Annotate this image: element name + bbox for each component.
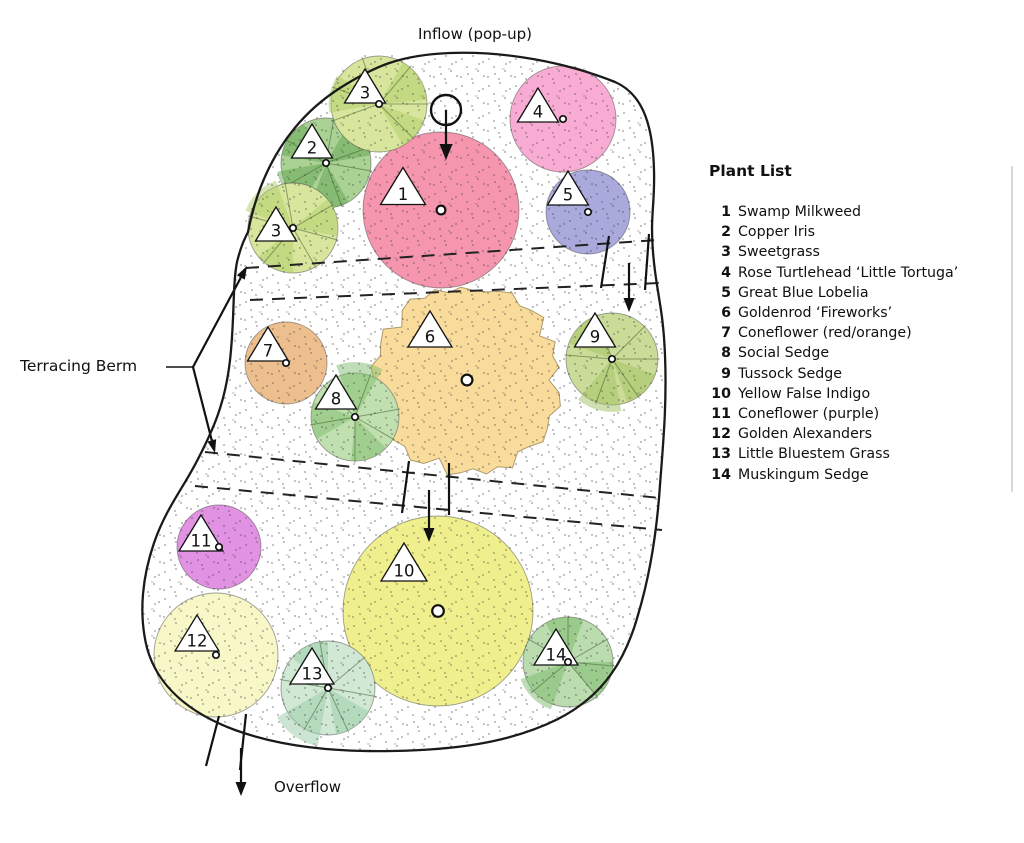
plant-list-item: 7Coneflower (red/orange) bbox=[705, 323, 1015, 343]
plant-center-dot bbox=[283, 360, 289, 366]
plant-number: 11 bbox=[705, 404, 731, 424]
plant-list-item: 14Muskingum Sedge bbox=[705, 465, 1015, 485]
plant-triangle-number: 2 bbox=[307, 139, 318, 158]
plant-number: 6 bbox=[705, 303, 731, 323]
inflow-label: Inflow (pop-up) bbox=[405, 25, 545, 43]
leader-arrow bbox=[193, 367, 216, 453]
plant-triangle-number: 5 bbox=[563, 186, 574, 205]
plant-triangle-number: 9 bbox=[590, 328, 601, 347]
plant-triangle-number: 14 bbox=[546, 646, 567, 665]
plant-center-dot bbox=[352, 414, 358, 420]
plant-number: 10 bbox=[705, 384, 731, 404]
plant-triangle-number: 12 bbox=[187, 632, 208, 651]
plant-center-dot bbox=[376, 101, 382, 107]
plant-number: 14 bbox=[705, 465, 731, 485]
plant-center-dot bbox=[213, 652, 219, 658]
plant-center-dot bbox=[216, 544, 222, 550]
plant-center-dot bbox=[565, 659, 571, 665]
plant-name: Little Bluestem Grass bbox=[731, 444, 890, 464]
plant-triangle-number: 3 bbox=[360, 84, 371, 103]
plant-list-item: 9Tussock Sedge bbox=[705, 364, 1015, 384]
plant-number: 4 bbox=[705, 263, 731, 283]
plant-list-items: 1Swamp Milkweed2Copper Iris3Sweetgrass4R… bbox=[705, 202, 1015, 485]
plant-center-dot bbox=[323, 160, 329, 166]
plant-triangle-number: 11 bbox=[191, 532, 212, 551]
plant-name: Coneflower (purple) bbox=[731, 404, 879, 424]
plant-number: 9 bbox=[705, 364, 731, 384]
plant-list-item: 13Little Bluestem Grass bbox=[705, 444, 1015, 464]
overflow-label: Overflow bbox=[274, 778, 341, 796]
plant-name: Goldenrod ‘Fireworks’ bbox=[731, 303, 892, 323]
plant-list-item: 4Rose Turtlehead ‘Little Tortuga’ bbox=[705, 263, 1015, 283]
plant-triangle-number: 7 bbox=[263, 342, 274, 361]
plant-triangle-number: 1 bbox=[398, 185, 409, 204]
plant-list-item: 6Goldenrod ‘Fireworks’ bbox=[705, 303, 1015, 323]
plant-center-dot bbox=[560, 116, 566, 122]
plant-name: Coneflower (red/orange) bbox=[731, 323, 912, 343]
plant-triangle-number: 6 bbox=[425, 328, 436, 347]
plant-number: 5 bbox=[705, 283, 731, 303]
plant-center-dot bbox=[609, 356, 615, 362]
plant-list-item: 12Golden Alexanders bbox=[705, 424, 1015, 444]
plant-number: 7 bbox=[705, 323, 731, 343]
plant-number: 12 bbox=[705, 424, 731, 444]
plant-name: Yellow False Indigo bbox=[731, 384, 870, 404]
plant-triangle-number: 8 bbox=[331, 390, 342, 409]
plant-triangle-number: 3 bbox=[271, 222, 282, 241]
plant-number: 8 bbox=[705, 343, 731, 363]
plant-name: Great Blue Lobelia bbox=[731, 283, 869, 303]
garden-plan-page: 12334567891011121314 Inflow (pop-up) Ove… bbox=[0, 0, 1024, 843]
plant-center-dot bbox=[325, 685, 331, 691]
plant-triangle-number: 13 bbox=[302, 665, 323, 684]
plant-list-item: 11Coneflower (purple) bbox=[705, 404, 1015, 424]
plant-list-item: 3Sweetgrass bbox=[705, 242, 1015, 262]
plant-list: Plant List 1Swamp Milkweed2Copper Iris3S… bbox=[705, 162, 1015, 485]
plant-number: 2 bbox=[705, 222, 731, 242]
plant-list-title: Plant List bbox=[709, 162, 1015, 180]
plant-triangle-number: 10 bbox=[394, 562, 415, 581]
plant-center-dot bbox=[290, 225, 296, 231]
plant-name: Rose Turtlehead ‘Little Tortuga’ bbox=[731, 263, 958, 283]
plant-name: Copper Iris bbox=[731, 222, 815, 242]
plant-name: Tussock Sedge bbox=[731, 364, 842, 384]
plant-list-item: 2Copper Iris bbox=[705, 222, 1015, 242]
plant-number: 13 bbox=[705, 444, 731, 464]
plant-name: Social Sedge bbox=[731, 343, 829, 363]
plant-name: Swamp Milkweed bbox=[731, 202, 861, 222]
plant-list-item: 1Swamp Milkweed bbox=[705, 202, 1015, 222]
flow-arrow bbox=[236, 748, 247, 796]
plant-center-dot bbox=[585, 209, 591, 215]
plant-center-dot bbox=[432, 605, 444, 617]
plant-name: Sweetgrass bbox=[731, 242, 820, 262]
plant-name: Golden Alexanders bbox=[731, 424, 872, 444]
plant-number: 3 bbox=[705, 242, 731, 262]
plant-center-dot bbox=[462, 375, 473, 386]
plant-list-item: 8Social Sedge bbox=[705, 343, 1015, 363]
plant-center-dot bbox=[437, 206, 446, 215]
plant-name: Muskingum Sedge bbox=[731, 465, 869, 485]
plant-list-item: 5Great Blue Lobelia bbox=[705, 283, 1015, 303]
plant-number: 1 bbox=[705, 202, 731, 222]
plant-list-item: 10Yellow False Indigo bbox=[705, 384, 1015, 404]
plant-triangle-number: 4 bbox=[533, 103, 544, 122]
terracing-berm-label: Terracing Berm bbox=[20, 357, 165, 375]
